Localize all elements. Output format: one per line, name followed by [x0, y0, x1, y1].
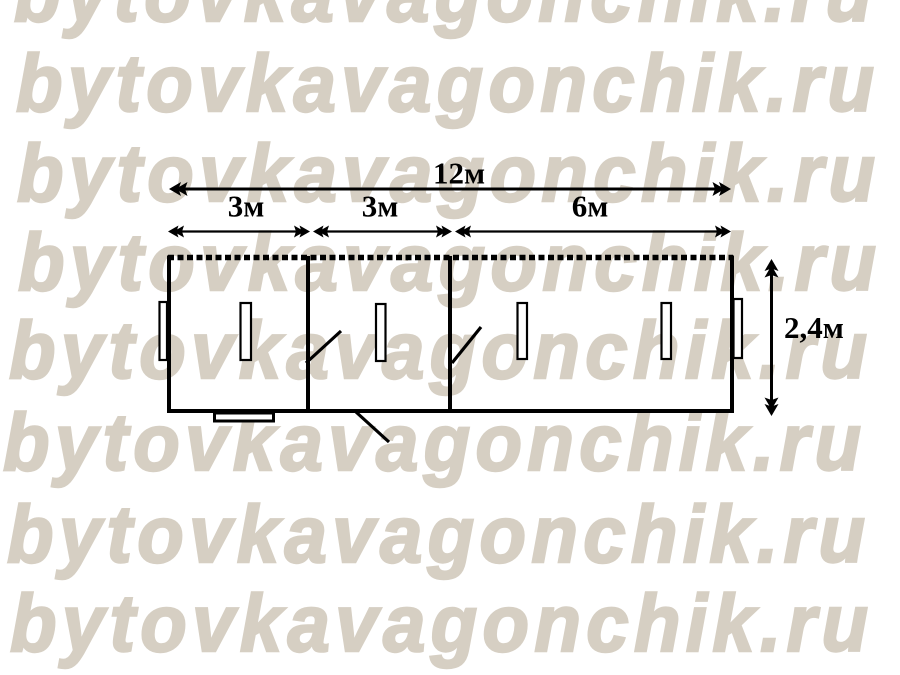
svg-text:6м: 6м: [572, 189, 609, 224]
svg-text:3м: 3м: [228, 189, 265, 224]
svg-text:12м: 12м: [433, 156, 485, 191]
svg-text:2,4м: 2,4м: [784, 310, 844, 345]
svg-text:3м: 3м: [362, 189, 399, 224]
